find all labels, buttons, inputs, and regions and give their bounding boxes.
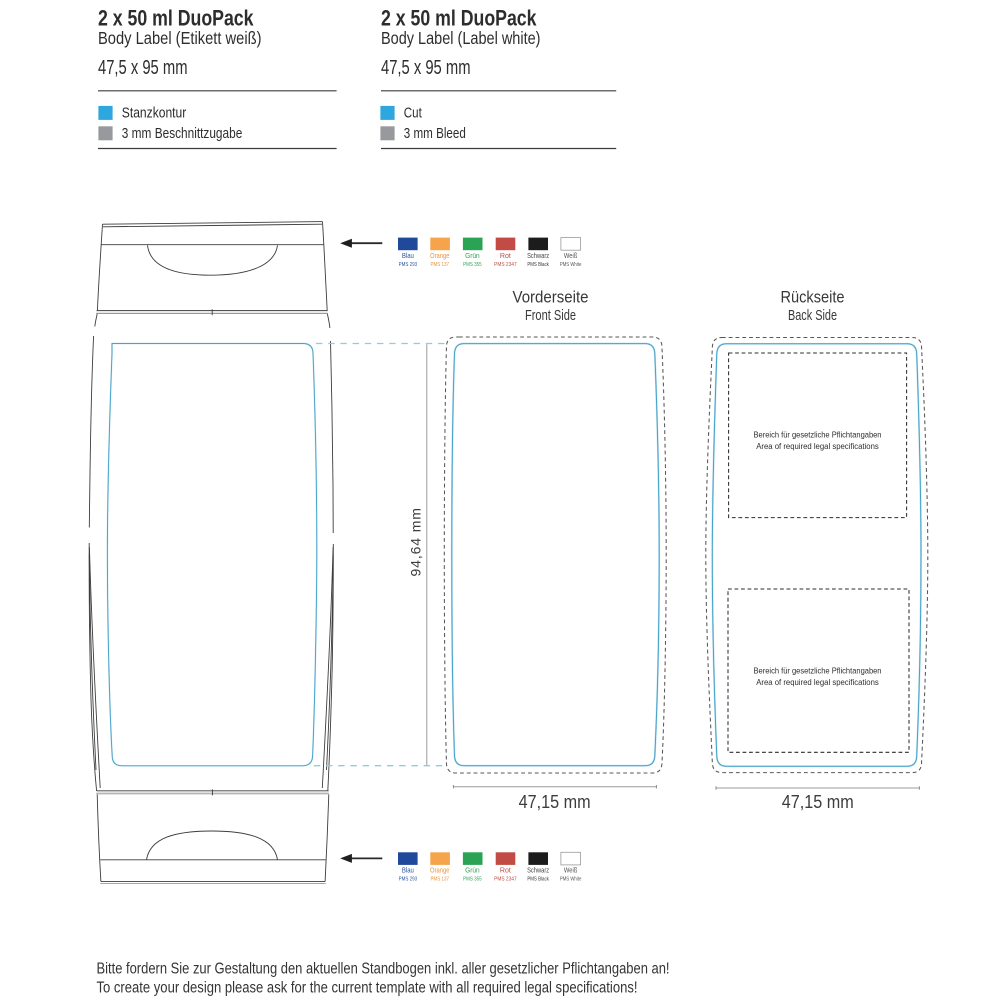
svg-text:94,64 mm: 94,64 mm	[408, 508, 424, 577]
svg-text:PMS Black: PMS Black	[527, 262, 549, 268]
svg-text:Stanzkontur: Stanzkontur	[122, 105, 187, 122]
svg-text:Orange: Orange	[430, 866, 450, 875]
svg-text:PMS 293: PMS 293	[399, 877, 418, 883]
svg-text:PMS 2347: PMS 2347	[494, 877, 517, 883]
svg-text:47,15 mm: 47,15 mm	[782, 791, 854, 812]
svg-text:Weiß: Weiß	[564, 251, 578, 260]
svg-text:47,5 x 95 mm: 47,5 x 95 mm	[98, 57, 188, 79]
svg-text:Bitte fordern Sie zur Gestaltu: Bitte fordern Sie zur Gestaltung den akt…	[97, 961, 670, 978]
svg-text:Bereich für gesetzliche Pflich: Bereich für gesetzliche Pflichtangaben	[754, 429, 882, 439]
svg-text:Vorderseite: Vorderseite	[513, 287, 589, 306]
svg-text:Body Label (Etikett weiß): Body Label (Etikett weiß)	[98, 28, 262, 48]
svg-text:PMS White: PMS White	[560, 262, 582, 268]
svg-text:Area of required legal specifi: Area of required legal specifications	[756, 677, 879, 687]
svg-text:PMS Black: PMS Black	[527, 877, 549, 883]
svg-text:PMS White: PMS White	[560, 877, 582, 883]
svg-text:Area of required legal specifi: Area of required legal specifications	[756, 441, 879, 451]
svg-text:47,5 x 95 mm: 47,5 x 95 mm	[381, 57, 471, 79]
svg-text:Schwarz: Schwarz	[527, 251, 549, 260]
svg-text:Orange: Orange	[430, 251, 450, 260]
svg-text:PMS 355: PMS 355	[463, 262, 482, 268]
svg-text:Cut: Cut	[404, 105, 423, 122]
svg-text:Grün: Grün	[465, 866, 480, 875]
svg-text:3 mm Bleed: 3 mm Bleed	[404, 125, 466, 142]
svg-text:Blau: Blau	[402, 866, 414, 875]
svg-text:Rot: Rot	[500, 251, 511, 260]
svg-text:PMS 2347: PMS 2347	[494, 262, 517, 268]
svg-text:3 mm Beschnittzugabe: 3 mm Beschnittzugabe	[122, 125, 243, 142]
svg-text:Rückseite: Rückseite	[781, 287, 845, 306]
svg-text:To create your design please a: To create your design please ask for the…	[97, 979, 638, 996]
svg-text:Weiß: Weiß	[564, 866, 578, 875]
svg-text:Grün: Grün	[465, 251, 480, 260]
svg-text:47,15 mm: 47,15 mm	[519, 791, 591, 812]
svg-text:Front Side: Front Side	[525, 308, 576, 324]
svg-text:2 x 50 ml DuoPack: 2 x 50 ml DuoPack	[381, 5, 537, 30]
svg-text:PMS 137: PMS 137	[431, 877, 450, 883]
svg-text:Back Side: Back Side	[788, 308, 837, 324]
svg-text:PMS 355: PMS 355	[463, 877, 482, 883]
svg-text:Body Label (Label white): Body Label (Label white)	[381, 28, 541, 48]
svg-text:PMS 293: PMS 293	[399, 262, 418, 268]
svg-text:Schwarz: Schwarz	[527, 866, 549, 875]
svg-text:Blau: Blau	[402, 251, 414, 260]
svg-text:2 x 50 ml DuoPack: 2 x 50 ml DuoPack	[98, 5, 254, 30]
svg-text:Bereich für gesetzliche Pflich: Bereich für gesetzliche Pflichtangaben	[754, 665, 882, 675]
svg-text:Rot: Rot	[500, 866, 511, 875]
svg-text:PMS 137: PMS 137	[431, 262, 450, 268]
